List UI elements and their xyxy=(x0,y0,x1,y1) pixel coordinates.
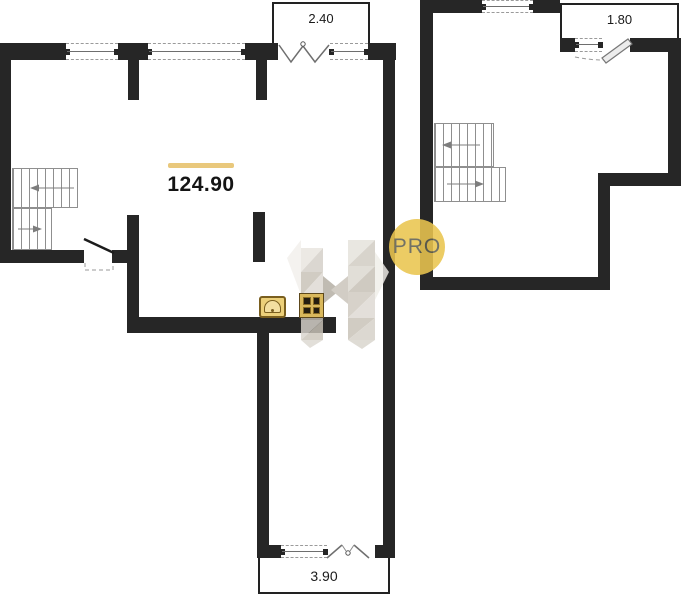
area-value: 124.90 xyxy=(160,173,242,197)
wall-under-balcony-a xyxy=(560,38,575,52)
pro-badge-text: PRO xyxy=(393,235,442,259)
wall-room-bottom xyxy=(127,317,336,333)
wall-stub-top-1 xyxy=(128,60,139,100)
doors-and-arrows-overlay xyxy=(0,0,681,600)
stove-burner xyxy=(303,307,311,315)
staircase-left-lower-flight xyxy=(12,208,52,250)
wall-right-room-step-h xyxy=(598,173,681,186)
wall-corridor-bottom-jamb-left xyxy=(257,545,281,558)
wall-stub-top-2 xyxy=(256,60,267,100)
staircase-right-lower-flight xyxy=(434,167,506,202)
total-area-label: 124.90 xyxy=(160,163,242,197)
wall-top-pier-1 xyxy=(118,43,148,60)
wall-corridor-left xyxy=(257,333,269,545)
wall-stub-interior-mid xyxy=(253,212,265,262)
sink-drain xyxy=(271,309,274,312)
wall-top-pier-2 xyxy=(245,43,278,60)
wall-bottom-left-a xyxy=(0,250,84,263)
wall-right-room-bottom xyxy=(420,277,610,290)
staircase-right-upper-flight xyxy=(434,123,494,167)
wall-left xyxy=(0,43,11,263)
balcony-right-size-label: 1.80 xyxy=(560,12,679,27)
window-corridor-bottom xyxy=(281,545,327,558)
stove-icon xyxy=(299,293,324,318)
entry-door xyxy=(84,239,114,270)
wall-right-room-right xyxy=(668,38,681,186)
wall-stub-interior-left xyxy=(127,215,139,333)
wall-corridor-bottom-jamb-right xyxy=(375,545,395,558)
wall-corridor-right xyxy=(383,43,395,545)
balcony-top-size-label: 2.40 xyxy=(272,11,370,26)
stove-burner xyxy=(303,297,311,305)
sink-icon xyxy=(259,296,286,318)
window-right-room-top xyxy=(482,0,533,13)
balcony-door-bottom xyxy=(327,545,369,558)
balcony-bottom-size-label: 3.90 xyxy=(258,568,390,584)
wall-right-room-top-b xyxy=(533,0,560,13)
stove-burner xyxy=(313,297,321,305)
staircase-left-upper-flight xyxy=(12,168,78,208)
area-accent-bar xyxy=(168,163,234,168)
window-top-1 xyxy=(66,43,118,60)
floor-plan: 2.40 1.80 3.90 124.90 PRO xyxy=(0,0,681,600)
letter-h-watermark xyxy=(0,0,681,600)
window-balcony-side xyxy=(330,43,368,60)
window-right-balcony-side xyxy=(575,38,602,52)
window-top-2 xyxy=(148,43,245,60)
balcony-door-top xyxy=(279,42,329,62)
stove-burner xyxy=(313,307,321,315)
wall-right-room-step-v xyxy=(598,173,610,290)
pro-badge: PRO xyxy=(389,219,445,275)
